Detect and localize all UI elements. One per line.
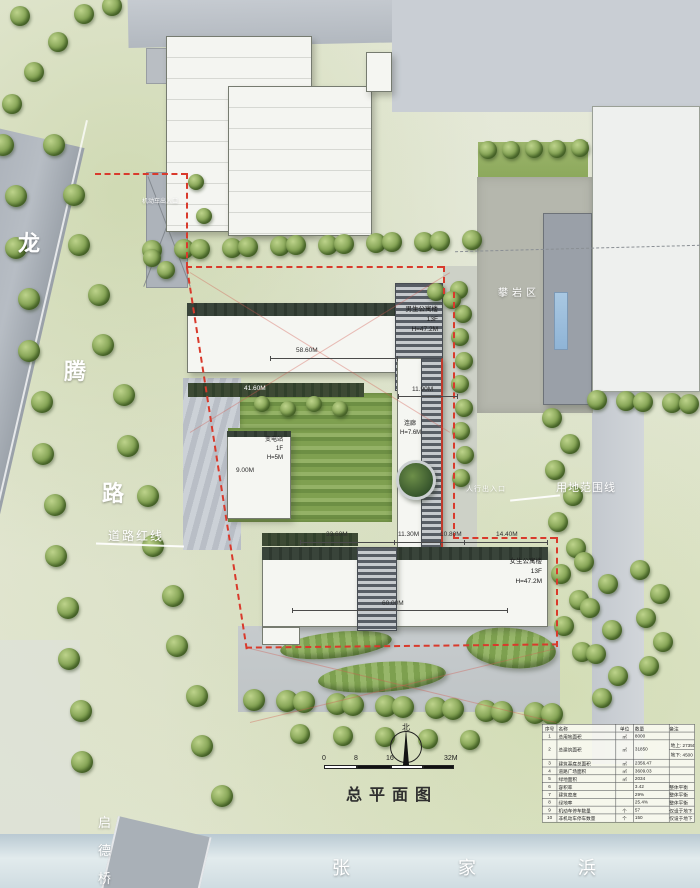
building-name: 女生公寓楼 <box>482 557 542 567</box>
table-cell-unit <box>616 783 633 790</box>
tree-icon <box>460 730 480 750</box>
building-floors: 1F <box>231 445 283 454</box>
table-cell-name: 建筑密度 <box>557 791 616 798</box>
building-name: 男生公寓楼 <box>360 305 438 315</box>
tree-icon <box>455 399 473 417</box>
table-cell-unit: 个 <box>616 814 633 822</box>
building-height: H=47.2M <box>360 325 438 335</box>
tree-icon <box>102 0 122 16</box>
building-floors: 13F <box>482 567 542 577</box>
table-row: 3建筑基底总面积㎡2356.47 <box>542 759 694 767</box>
road-red-line-label: 道路红线 <box>108 527 164 544</box>
table-cell-name: 总用地面积 <box>557 732 616 739</box>
longteng-road-char: 腾 <box>64 354 86 386</box>
river-char: 张 <box>332 854 350 880</box>
top-right-pavement <box>392 0 700 112</box>
tree-icon <box>679 394 699 414</box>
table-cell-name: 非机动车停车数量 <box>557 814 616 822</box>
table-cell-unit: ㎡ <box>616 732 633 739</box>
table-row: 6容积率3.42整体平衡 <box>542 783 694 791</box>
dimension-line <box>270 358 398 359</box>
table-cell-no: 3 <box>542 759 557 766</box>
tree-icon <box>290 724 310 744</box>
tree-icon <box>639 656 659 676</box>
site-boundary-line <box>186 266 443 268</box>
tree-icon <box>286 235 306 255</box>
dimension-label: 41.60M <box>244 385 266 392</box>
table-cell-qty: 3609.03 <box>634 767 670 774</box>
tree-icon <box>186 685 208 707</box>
tree-icon <box>382 232 402 252</box>
tree-icon <box>191 735 213 757</box>
table-cell-no: 4 <box>542 767 557 774</box>
tree-icon <box>560 434 580 454</box>
tree-icon <box>74 4 94 24</box>
table-subcell: 地上: 27350 <box>669 740 694 750</box>
building-name: 变电站 <box>231 436 283 445</box>
tree-icon <box>63 184 85 206</box>
table-row: 7建筑密度29%整体平衡 <box>542 791 694 799</box>
table-cell-no: 2 <box>542 740 557 759</box>
tree-icon <box>68 234 90 256</box>
table-header-cell: 单位 <box>616 724 633 731</box>
bridge-char: 德 <box>98 840 111 859</box>
scale-tick-label: 8 <box>354 755 358 762</box>
dimension-label: 9.00M <box>236 467 254 474</box>
tree-icon <box>58 648 80 670</box>
tree-icon <box>2 94 22 114</box>
tree-icon <box>332 401 348 417</box>
tree-icon <box>653 632 673 652</box>
tree-icon <box>586 644 606 664</box>
round-planter <box>396 460 436 500</box>
tree-icon <box>479 141 497 159</box>
table-cell-no: 9 <box>542 806 557 813</box>
tree-icon <box>545 460 565 480</box>
tree-icon <box>10 6 30 26</box>
tree-icon <box>571 139 589 157</box>
bridge <box>100 816 212 888</box>
table-cell-unit: ㎡ <box>616 740 633 759</box>
tree-icon <box>542 408 562 428</box>
scale-tick-label: 32M <box>444 755 458 762</box>
longteng-road-char: 龙 <box>18 226 40 258</box>
site-plan-canvas: 58.60M 11.90M 9.00M 60.00M 33.60M 11.30M… <box>0 0 700 888</box>
tree-icon <box>24 62 44 82</box>
table-header-cell: 数量 <box>634 724 670 731</box>
tree-icon <box>442 698 464 720</box>
existing-building-small <box>366 52 392 92</box>
building-height: H=7.6M <box>400 429 420 438</box>
tree-icon <box>592 688 612 708</box>
table-cell-qty: 3.42 <box>634 783 670 790</box>
table-header-cell: 备注 <box>669 724 694 731</box>
table-subcell: 地下: 4500 <box>669 750 694 759</box>
tree-icon <box>117 435 139 457</box>
table-cell-name: 建筑基底总面积 <box>557 759 616 766</box>
climbing-area-label: 攀岩区 <box>498 284 540 299</box>
tree-icon <box>190 239 210 259</box>
tree-icon <box>333 726 353 746</box>
table-cell-unit: 个 <box>616 806 633 813</box>
table-cell-qty: 25.4% <box>634 799 670 806</box>
tree-icon <box>551 564 571 584</box>
table-cell-unit: ㎡ <box>616 775 633 782</box>
male-dorm-label: 男生公寓楼 13F H=47.2M <box>360 305 438 334</box>
table-row: 9机动车停车数量个57仅设于地下 <box>542 806 694 814</box>
area-table-wrapper: 序号名称单位数量备注1总用地面积㎡80002总建筑面积㎡31850地上: 273… <box>542 724 695 822</box>
existing-building <box>228 86 372 236</box>
tree-icon <box>630 560 650 580</box>
climbing-building <box>543 213 592 405</box>
table-cell-remark: 整体平衡 <box>669 791 694 798</box>
table-cell-qty: 2034 <box>634 775 670 782</box>
tree-icon <box>254 396 270 412</box>
tree-icon <box>455 352 473 370</box>
table-row: 5绿地面积㎡2034 <box>542 775 694 783</box>
female-dorm-stair-tower <box>357 547 397 631</box>
scale-bar-segment <box>423 765 454 769</box>
tree-icon <box>32 443 54 465</box>
dimension-line <box>292 610 508 611</box>
tree-icon <box>137 485 159 507</box>
site-boundary-line <box>453 292 455 539</box>
table-row: 1总用地面积㎡8000 <box>542 732 694 740</box>
substation-label: 变电站 1F H=5M <box>231 436 283 463</box>
building-name: 连廊 <box>400 420 420 429</box>
bridge-char: 桥 <box>98 868 111 887</box>
dimension-label: 11.30M <box>398 531 419 538</box>
table-header-cell: 序号 <box>542 724 557 731</box>
table-cell-remark: 地上: 27350地下: 4500 <box>669 740 694 759</box>
scale-tick-label: 0 <box>322 755 326 762</box>
drawing-title: 总平面图 <box>346 781 438 805</box>
site-boundary-label: 用地范围线 <box>556 479 616 495</box>
table-cell-qty: 8000 <box>634 732 670 739</box>
table-cell-no: 6 <box>542 783 557 790</box>
tree-icon <box>211 785 233 807</box>
tree-icon <box>43 134 65 156</box>
tree-icon <box>430 231 450 251</box>
tree-icon <box>608 666 628 686</box>
dimension-label: 10.80M <box>440 531 462 538</box>
dimension-label: 14.40M <box>496 531 518 538</box>
tree-icon <box>157 261 175 279</box>
building-height: H=5M <box>231 454 283 463</box>
dimension-label: 58.60M <box>296 347 318 354</box>
tree-icon <box>580 598 600 618</box>
dimension-line <box>398 396 458 397</box>
table-row: 8绿地率25.4%整体平衡 <box>542 799 694 807</box>
tree-icon <box>18 288 40 310</box>
dimension-line <box>300 542 548 543</box>
tree-icon <box>548 512 568 532</box>
table-cell-remark: 仅设于地下 <box>669 806 694 813</box>
tree-icon <box>92 334 114 356</box>
tree-icon <box>162 585 184 607</box>
table-cell-qty: 57 <box>634 806 670 813</box>
river-char: 家 <box>458 854 476 880</box>
scale-bar-segment <box>324 765 357 769</box>
skylight <box>554 292 568 350</box>
river-char: 浜 <box>578 854 596 880</box>
table-cell-remark: 整体平衡 <box>669 783 694 790</box>
table-cell-qty: 150 <box>634 814 670 822</box>
table-cell-no: 8 <box>542 799 557 806</box>
tree-icon <box>44 494 66 516</box>
female-dorm-wing <box>262 627 300 645</box>
road-red-line-mark <box>96 542 184 547</box>
table-cell-unit: ㎡ <box>616 759 633 766</box>
table-cell-qty: 2356.47 <box>634 759 670 766</box>
tree-icon <box>636 608 656 628</box>
canopy-hedge <box>188 383 364 397</box>
tree-icon <box>443 291 461 309</box>
dimension-label: 60.00M <box>382 600 404 607</box>
table-cell-remark <box>669 775 694 782</box>
tree-icon <box>548 140 566 158</box>
existing-building-east <box>592 106 700 392</box>
tree-icon <box>650 584 670 604</box>
vehicle-entrance-label: 机动车出入口 <box>142 196 178 205</box>
table-cell-no: 10 <box>542 814 557 822</box>
tree-icon <box>31 391 53 413</box>
table-row: 4道路广场面积㎡3609.03 <box>542 767 694 775</box>
dimension-tick <box>440 540 441 545</box>
tree-icon <box>587 390 607 410</box>
table-cell-name: 容积率 <box>557 783 616 790</box>
tree-icon <box>334 234 354 254</box>
tree-icon <box>88 284 110 306</box>
table-cell-name: 道路广场面积 <box>557 767 616 774</box>
pedestrian-entrance-label: 人行出入口 <box>466 484 506 494</box>
dimension-tick <box>394 540 395 545</box>
tree-icon <box>18 340 40 362</box>
corridor-label: 连廊 H=7.6M <box>400 420 420 438</box>
building-floors: 13F <box>360 315 438 325</box>
table-cell-remark: 仅设于地下 <box>669 814 694 822</box>
table-cell-name: 机动车停车数量 <box>557 806 616 813</box>
tree-icon <box>280 401 296 417</box>
table-cell-qty: 29% <box>634 791 670 798</box>
table-cell-remark: 整体平衡 <box>669 799 694 806</box>
table-cell-remark <box>669 732 694 739</box>
scale-bar-segment <box>357 765 391 769</box>
tree-icon <box>243 689 265 711</box>
tree-icon <box>45 545 67 567</box>
tree-icon <box>633 392 653 412</box>
table-cell-name: 总建筑面积 <box>557 740 616 759</box>
table-cell-remark <box>669 767 694 774</box>
table-header-row: 序号名称单位数量备注 <box>542 724 694 732</box>
dimension-label: 11.90M <box>412 386 433 393</box>
table-cell-name: 绿地率 <box>557 799 616 806</box>
table-cell-unit: ㎡ <box>616 767 633 774</box>
dimension-tick <box>464 540 465 545</box>
tree-icon <box>71 751 93 773</box>
table-cell-name: 绿地面积 <box>557 775 616 782</box>
bridge-char: 启 <box>98 812 111 831</box>
table-row: 10非机动车停车数量个150仅设于地下 <box>542 814 694 822</box>
table-cell-unit <box>616 799 633 806</box>
table-cell-no: 7 <box>542 791 557 798</box>
tree-icon <box>5 185 27 207</box>
table-cell-no: 1 <box>542 732 557 739</box>
area-table: 序号名称单位数量备注1总用地面积㎡80002总建筑面积㎡31850地上: 273… <box>542 724 695 822</box>
scale-bar-segment <box>391 765 423 769</box>
tree-icon <box>392 696 414 718</box>
table-cell-unit <box>616 791 633 798</box>
table-cell-remark <box>669 759 694 766</box>
table-header-cell: 名称 <box>557 724 616 731</box>
building-height: H=47.2M <box>482 577 542 587</box>
tree-icon <box>238 237 258 257</box>
table-cell-qty: 31850 <box>634 740 670 759</box>
tree-icon <box>196 208 212 224</box>
site-boundary-line <box>443 266 445 294</box>
dimension-label: 33.60M <box>326 531 348 538</box>
tree-icon <box>525 140 543 158</box>
tree-icon <box>462 230 482 250</box>
tree-icon <box>574 552 594 572</box>
tree-icon <box>188 174 204 190</box>
site-boundary-line <box>556 537 558 647</box>
tree-icon <box>456 446 474 464</box>
tree-icon <box>502 141 520 159</box>
tree-icon <box>598 574 618 594</box>
site-boundary-line <box>186 173 188 268</box>
tree-icon <box>70 700 92 722</box>
table-cell-no: 5 <box>542 775 557 782</box>
tree-icon <box>113 384 135 406</box>
tree-icon <box>166 635 188 657</box>
site-boundary-line <box>95 173 187 175</box>
tree-icon <box>602 620 622 640</box>
tree-icon <box>48 32 68 52</box>
longteng-road-char: 路 <box>102 476 124 508</box>
tree-icon <box>57 597 79 619</box>
site-boundary-leader <box>510 494 560 501</box>
tree-icon <box>306 396 322 412</box>
north-needle-icon <box>403 729 409 765</box>
female-dorm-label: 女生公寓楼 13F H=47.2M <box>482 557 542 586</box>
scale-tick-label: 16 <box>386 755 394 762</box>
table-row: 2总建筑面积㎡31850地上: 27350地下: 4500 <box>542 740 694 759</box>
